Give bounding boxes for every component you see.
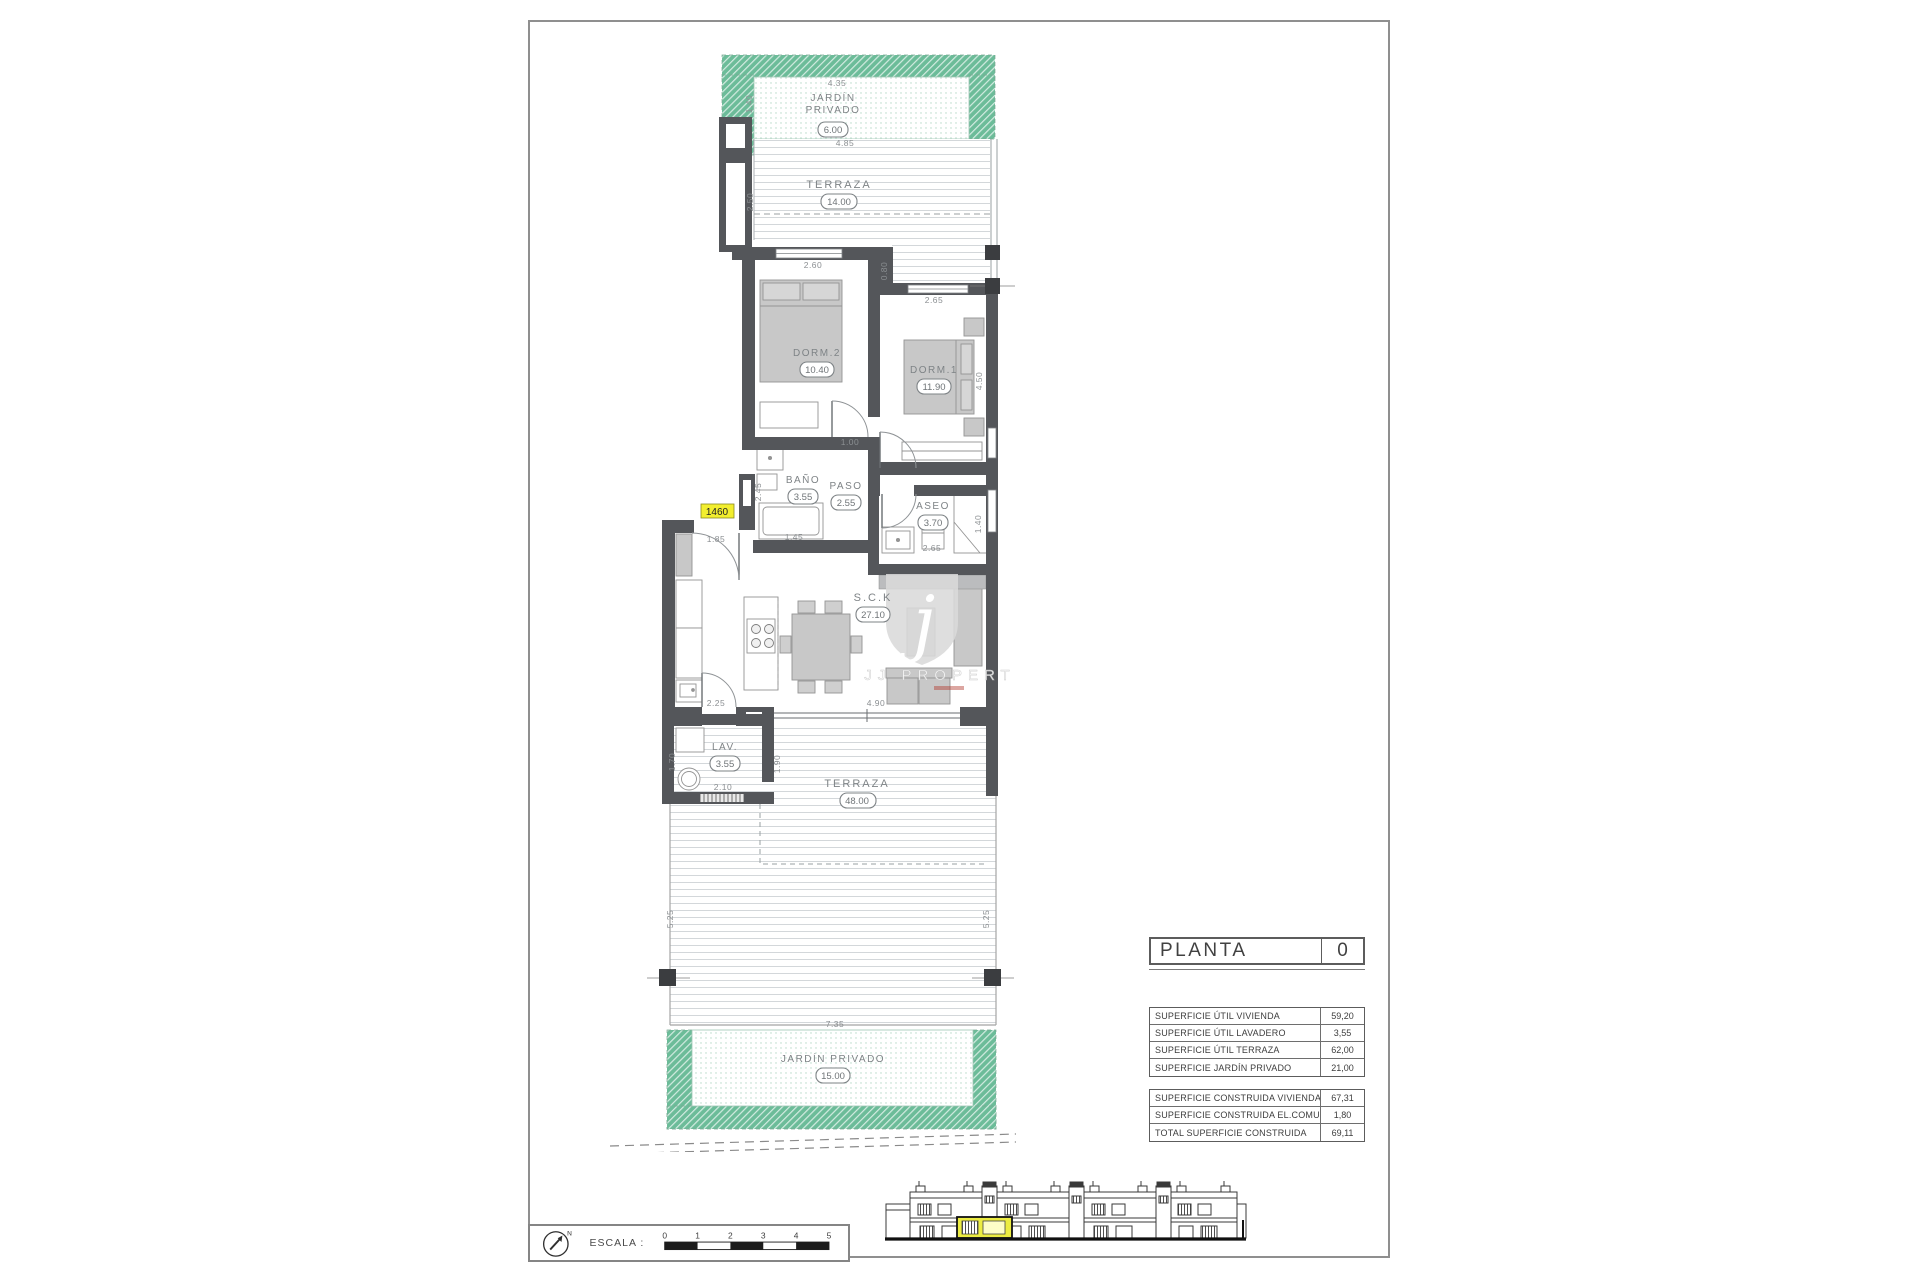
area-terraza-top: 14.00 (827, 197, 851, 208)
area-terraza-bottom: 48.00 (845, 796, 869, 807)
svg-text:2.25: 2.25 (707, 698, 726, 708)
unit-tag: 1460 (701, 504, 734, 518)
svg-text:4: 4 (794, 1230, 799, 1240)
surface-table: SUPERFICIE ÚTIL VIVIENDA 59,20 SUPERFICI… (1149, 1007, 1365, 1077)
svg-text:0.80: 0.80 (879, 262, 889, 281)
area-paso: 2.55 (837, 498, 856, 509)
svg-text:2.45: 2.45 (753, 483, 763, 502)
area-aseo: 3.70 (924, 518, 943, 529)
svg-text:PRIVADO: PRIVADO (806, 105, 861, 116)
label-dorm1: DORM.1 (910, 365, 958, 376)
planta-title: PLANTA (1151, 939, 1322, 963)
label-sck: S.C.K (854, 592, 893, 604)
dining-table (780, 601, 862, 693)
svg-text:2.10: 2.10 (714, 782, 733, 792)
area-lav: 3.55 (716, 759, 735, 770)
label-aseo: ASEO (916, 501, 950, 512)
kitchen-island (744, 597, 778, 690)
svg-text:2.50: 2.50 (745, 193, 755, 212)
plan-page: j JJ PROPERT JARDÍN PRIVADO 6.00 TERRAZA… (528, 20, 1390, 1258)
window-side (988, 428, 996, 458)
svg-text:2.60: 2.60 (804, 260, 823, 270)
area-jardin-bottom: 15.00 (821, 1071, 845, 1082)
plot-boundary-line (610, 1134, 1016, 1152)
svg-text:5: 5 (827, 1230, 832, 1240)
svg-text:1.45: 1.45 (785, 532, 804, 542)
kitchen-counter (676, 534, 702, 702)
svg-text:7.35: 7.35 (826, 1019, 845, 1029)
scale-bar: 0 1 2 3 4 5 (660, 1229, 848, 1257)
area-bano: 3.55 (794, 492, 813, 503)
nightstand (964, 318, 984, 336)
svg-text:0: 0 (663, 1230, 668, 1240)
svg-text:5.25: 5.25 (665, 910, 675, 929)
scale-label: ESCALA : (590, 1237, 645, 1249)
table-row: SUPERFICIE JARDÍN PRIVADO 21,00 (1150, 1059, 1364, 1076)
table-row: SUPERFICIE ÚTIL LAVADERO 3,55 (1150, 1025, 1364, 1042)
svg-text:1.90: 1.90 (772, 755, 782, 774)
label-lav: LAV. (712, 742, 738, 753)
label-dorm2: DORM.2 (793, 348, 841, 359)
table-row: SUPERFICIE ÚTIL TERRAZA 62,00 (1150, 1042, 1364, 1059)
building-elevation (880, 1162, 1260, 1246)
label-jardin-bottom: JARDÍN PRIVADO (781, 1052, 885, 1065)
label-jardin-top: JARDÍN (810, 91, 855, 104)
svg-text:4.35: 4.35 (828, 78, 847, 88)
svg-text:4.50: 4.50 (974, 372, 984, 391)
svg-text:N: N (567, 1230, 572, 1237)
svg-text:1.40: 1.40 (744, 95, 754, 114)
svg-text:2.65: 2.65 (925, 295, 944, 305)
label-terraza-top: TERRAZA (806, 179, 871, 191)
svg-text:1.40: 1.40 (973, 515, 983, 534)
svg-text:1460: 1460 (706, 507, 729, 518)
svg-text:4.90: 4.90 (867, 698, 886, 708)
svg-text:1.85: 1.85 (707, 534, 726, 544)
door-dorm2 (832, 401, 868, 437)
table-row: SUPERFICIE CONSTRUIDA EL.COMUNES 1,80 (1150, 1107, 1364, 1124)
area-dorm1: 11.90 (922, 382, 945, 393)
area-jardin-top: 6.00 (824, 125, 843, 136)
svg-text:2.65: 2.65 (923, 543, 942, 553)
label-bano: BAÑO (786, 473, 820, 486)
drawing-sheet: j JJ PROPERT JARDÍN PRIVADO 6.00 TERRAZA… (0, 0, 1920, 1280)
area-sck: 27.10 (861, 610, 885, 621)
planta-header: PLANTA 0 (1149, 937, 1365, 965)
built-table: SUPERFICIE CONSTRUIDA VIVIENDA 67,31 SUP… (1149, 1089, 1365, 1142)
svg-text:4.85: 4.85 (836, 138, 855, 148)
door-aseo (882, 494, 916, 528)
dresser-dorm2 (760, 402, 818, 428)
table-row: SUPERFICIE ÚTIL VIVIENDA 59,20 (1150, 1008, 1364, 1025)
label-terraza-bottom: TERRAZA (824, 778, 889, 790)
planta-header-underline (1149, 969, 1365, 970)
highlighted-unit (957, 1217, 1012, 1238)
svg-text:3: 3 (761, 1230, 766, 1240)
window-side (988, 490, 996, 532)
scale-box: N ESCALA : 0 1 2 3 4 5 (528, 1224, 850, 1262)
planta-value: 0 (1322, 939, 1363, 963)
sliding-door (774, 709, 960, 722)
tv-bench (954, 578, 982, 666)
table-row: TOTAL SUPERFICIE CONSTRUIDA 69,11 (1150, 1124, 1364, 1141)
area-dorm2: 10.40 (805, 365, 829, 376)
north-arrow-icon: N (538, 1226, 576, 1260)
svg-text:5.25: 5.25 (981, 910, 991, 929)
watermark-text: JJ PROPERT (864, 667, 1015, 684)
label-paso: PASO (829, 481, 862, 492)
svg-text:1: 1 (695, 1230, 700, 1240)
svg-text:2: 2 (728, 1230, 733, 1240)
svg-text:1.70: 1.70 (667, 753, 677, 772)
nightstand (964, 418, 984, 436)
bed-dorm1 (904, 340, 974, 414)
svg-text:1.00: 1.00 (841, 437, 860, 447)
floor-plan: j JJ PROPERT JARDÍN PRIVADO 6.00 TERRAZA… (530, 22, 1392, 1152)
table-row: SUPERFICIE CONSTRUIDA VIVIENDA 67,31 (1150, 1090, 1364, 1107)
